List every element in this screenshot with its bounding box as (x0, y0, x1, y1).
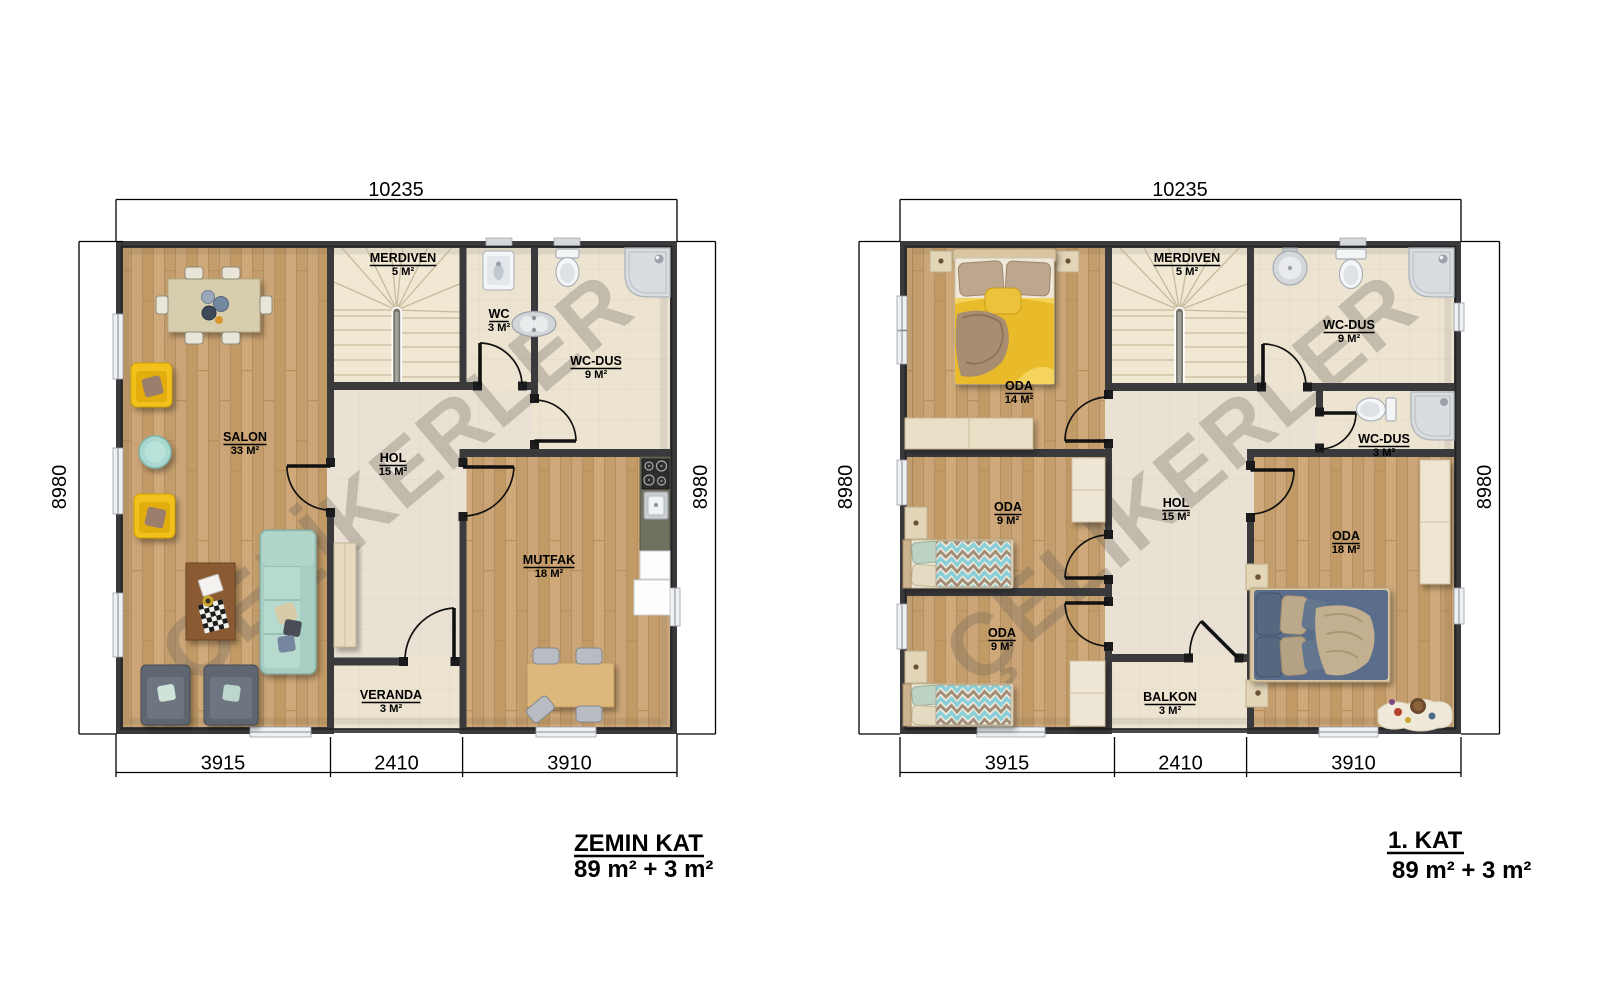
svg-text:3910: 3910 (547, 753, 592, 775)
svg-text:3915: 3915 (985, 753, 1030, 775)
svg-text:WC-DUS: WC-DUS (1358, 432, 1410, 446)
svg-text:10235: 10235 (368, 179, 424, 201)
svg-text:ODA: ODA (1005, 379, 1033, 393)
svg-text:3 M²: 3 M² (380, 703, 403, 715)
svg-text:SALON: SALON (223, 430, 267, 444)
svg-text:2410: 2410 (1158, 753, 1203, 775)
svg-text:ZEMIN KAT: ZEMIN KAT (574, 830, 703, 857)
svg-text:89 m² + 3 m²: 89 m² + 3 m² (1392, 857, 1531, 884)
svg-text:18 M²: 18 M² (535, 568, 564, 580)
svg-text:MERDIVEN: MERDIVEN (1154, 251, 1220, 265)
svg-text:89 m² + 3 m²: 89 m² + 3 m² (574, 856, 713, 883)
svg-text:WC-DUS: WC-DUS (1323, 318, 1375, 332)
svg-text:3910: 3910 (1331, 753, 1376, 775)
svg-text:3915: 3915 (201, 753, 246, 775)
svg-text:9 M²: 9 M² (991, 641, 1014, 653)
svg-text:ODA: ODA (1332, 529, 1360, 543)
svg-text:ODA: ODA (988, 626, 1016, 640)
svg-text:18 M²: 18 M² (1332, 544, 1361, 556)
svg-text:14 M²: 14 M² (1005, 394, 1034, 406)
svg-text:8980: 8980 (835, 465, 857, 510)
svg-text:8980: 8980 (690, 465, 712, 510)
svg-text:MUTFAK: MUTFAK (523, 553, 575, 567)
svg-text:9 M²: 9 M² (997, 515, 1020, 527)
svg-text:5 M²: 5 M² (1176, 266, 1199, 278)
svg-text:VERANDA: VERANDA (360, 688, 422, 702)
svg-text:3 M²: 3 M² (488, 322, 511, 334)
svg-text:1. KAT: 1. KAT (1388, 827, 1463, 854)
svg-text:HOL: HOL (1163, 496, 1190, 510)
svg-text:5 M²: 5 M² (392, 266, 415, 278)
svg-text:8980: 8980 (49, 465, 71, 510)
svg-text:10235: 10235 (1152, 179, 1208, 201)
svg-text:33 M²: 33 M² (231, 445, 260, 457)
svg-text:8980: 8980 (1474, 465, 1496, 510)
svg-text:9 M²: 9 M² (585, 369, 608, 381)
svg-text:2410: 2410 (374, 753, 419, 775)
svg-text:BALKON: BALKON (1143, 690, 1197, 704)
svg-text:WC-DUS: WC-DUS (570, 354, 622, 368)
svg-text:3 M²: 3 M² (1373, 447, 1396, 459)
svg-text:HOL: HOL (380, 451, 407, 465)
svg-text:15 M²: 15 M² (1162, 511, 1191, 523)
svg-text:ODA: ODA (994, 500, 1022, 514)
svg-text:WC: WC (489, 307, 510, 321)
svg-text:15 M²: 15 M² (379, 466, 408, 478)
svg-text:MERDIVEN: MERDIVEN (370, 251, 436, 265)
svg-text:3 M²: 3 M² (1159, 705, 1182, 717)
svg-text:9 M²: 9 M² (1338, 333, 1361, 345)
